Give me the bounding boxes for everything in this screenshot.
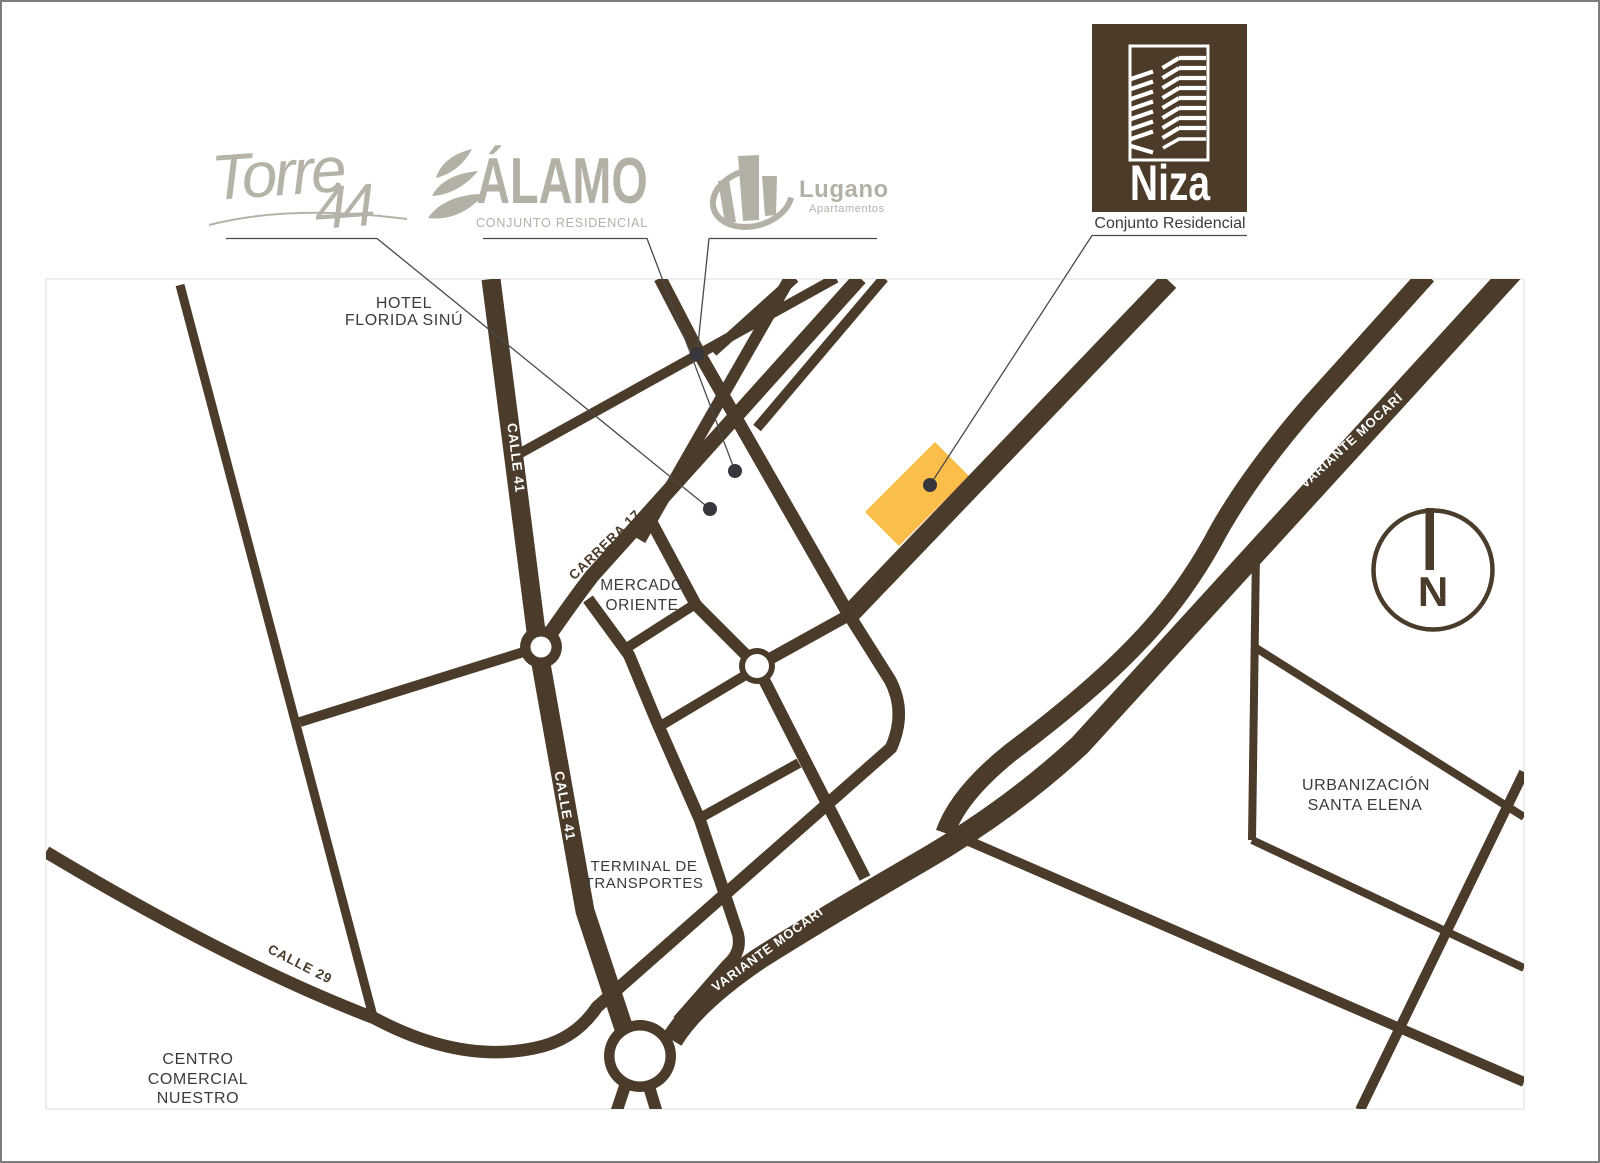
svg-text:HOTEL: HOTEL (376, 295, 432, 312)
svg-text:URBANIZACIÓN: URBANIZACIÓN (1302, 775, 1430, 794)
svg-text:ORIENTE: ORIENTE (605, 597, 678, 614)
svg-text:SANTA ELENA: SANTA ELENA (1308, 797, 1423, 814)
svg-text:Niza: Niza (1130, 154, 1211, 211)
svg-text:Conjunto Residencial: Conjunto Residencial (1094, 215, 1245, 232)
svg-text:ÁLAMO: ÁLAMO (476, 144, 648, 217)
svg-text:N: N (1418, 568, 1448, 615)
svg-text:CENTRO: CENTRO (162, 1051, 233, 1068)
svg-text:FLORIDA SINÚ: FLORIDA SINÚ (345, 310, 463, 329)
svg-text:COMERCIAL: COMERCIAL (148, 1071, 249, 1088)
svg-text:MERCADO: MERCADO (600, 577, 683, 594)
svg-text:CONJUNTO RESIDENCIAL: CONJUNTO RESIDENCIAL (476, 216, 648, 230)
svg-text:44: 44 (312, 171, 376, 242)
svg-text:Apartamentos: Apartamentos (809, 203, 885, 215)
svg-text:TERMINAL DE: TERMINAL DE (591, 858, 698, 875)
svg-text:TRANSPORTES: TRANSPORTES (585, 875, 704, 892)
svg-text:Lugano: Lugano (799, 176, 889, 203)
svg-text:NUESTRO: NUESTRO (157, 1090, 239, 1107)
